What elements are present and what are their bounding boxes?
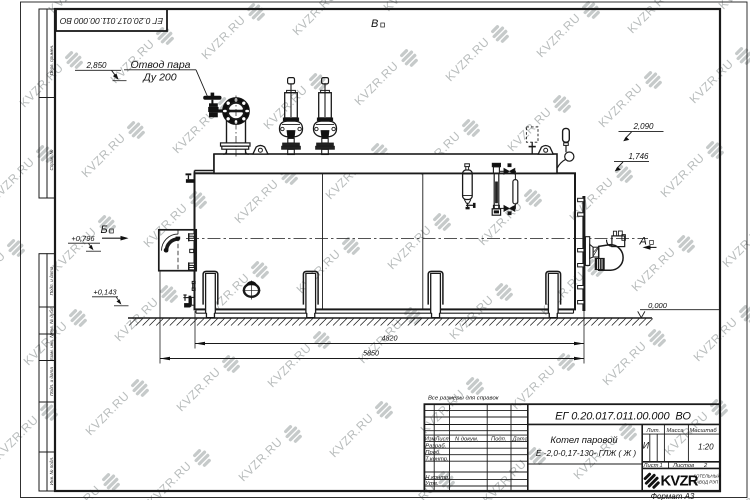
svg-text:2,090: 2,090 — [632, 122, 654, 131]
svg-text:Ду 200: Ду 200 — [142, 72, 176, 84]
svg-text:Изм: Изм — [425, 437, 436, 443]
svg-text:0,000: 0,000 — [648, 301, 668, 310]
svg-text:И: И — [643, 441, 650, 451]
svg-text:Масса: Масса — [667, 428, 685, 434]
svg-text:ЕГ 0.20.017.011.00.000 ВО: ЕГ 0.20.017.011.00.000 ВО — [555, 411, 691, 423]
svg-text:Отвод пара: Отвод пара — [130, 59, 190, 71]
svg-text:Лит.: Лит. — [646, 428, 661, 434]
svg-text:Масштаб: Масштаб — [690, 428, 718, 434]
svg-text:КОТЕЛЬНЫЙ: КОТЕЛЬНЫЙ — [694, 474, 722, 479]
svg-text:4820: 4820 — [382, 334, 398, 343]
svg-text:Н.контр.: Н.контр. — [425, 475, 450, 481]
svg-text:Перв. примен.: Перв. примен. — [49, 45, 54, 76]
svg-text:Инв. № дубл.: Инв. № дубл. — [49, 306, 54, 334]
svg-text:1,746: 1,746 — [628, 152, 649, 161]
svg-text:Дата: Дата — [512, 437, 529, 443]
svg-text:Подп. и дата: Подп. и дата — [49, 266, 54, 295]
svg-text:Котел паровой: Котел паровой — [550, 434, 618, 445]
svg-text:А: А — [639, 236, 647, 248]
svg-text:1: 1 — [660, 463, 663, 469]
svg-text:Подп.: Подп. — [491, 437, 506, 443]
svg-text:+0,143: +0,143 — [93, 288, 117, 297]
svg-text:1:20: 1:20 — [698, 443, 714, 452]
svg-text:Т.контр.: Т.контр. — [425, 456, 448, 462]
svg-text:ЕГ 0.20.017.011.00.000 ВО: ЕГ 0.20.017.011.00.000 ВО — [60, 16, 164, 26]
svg-text:5850: 5850 — [363, 349, 379, 358]
svg-text:Инв. № подл.: Инв. № подл. — [49, 457, 54, 486]
svg-text:Утв.: Утв. — [424, 481, 438, 487]
svg-text:Разраб.: Разраб. — [425, 444, 446, 450]
svg-text:Б: Б — [101, 224, 108, 236]
svg-text:Формат А3: Формат А3 — [651, 492, 695, 500]
svg-text:Лист: Лист — [434, 437, 450, 443]
svg-text:ЗАВОД РЭП: ЗАВОД РЭП — [694, 480, 720, 485]
svg-text:2,850: 2,850 — [85, 61, 107, 70]
svg-text:Все размеры для справок: Все размеры для справок — [428, 396, 499, 402]
svg-text:Взам. инв. №: Взам. инв. № — [49, 333, 54, 361]
svg-text:В: В — [371, 18, 378, 30]
svg-text:Е -2,0-0,17-130- ГЛЖ ( Ж ): Е -2,0-0,17-130- ГЛЖ ( Ж ) — [536, 448, 637, 458]
svg-text:Листов: Листов — [672, 463, 694, 469]
svg-text:Лист: Лист — [643, 463, 659, 469]
svg-text:+0,796: +0,796 — [71, 234, 95, 243]
svg-text:N докум.: N докум. — [455, 437, 478, 443]
svg-text:Подп. и дата: Подп. и дата — [49, 367, 54, 396]
svg-text:Справ. №: Справ. № — [49, 150, 54, 171]
svg-text:Проб.: Проб. — [425, 450, 441, 456]
